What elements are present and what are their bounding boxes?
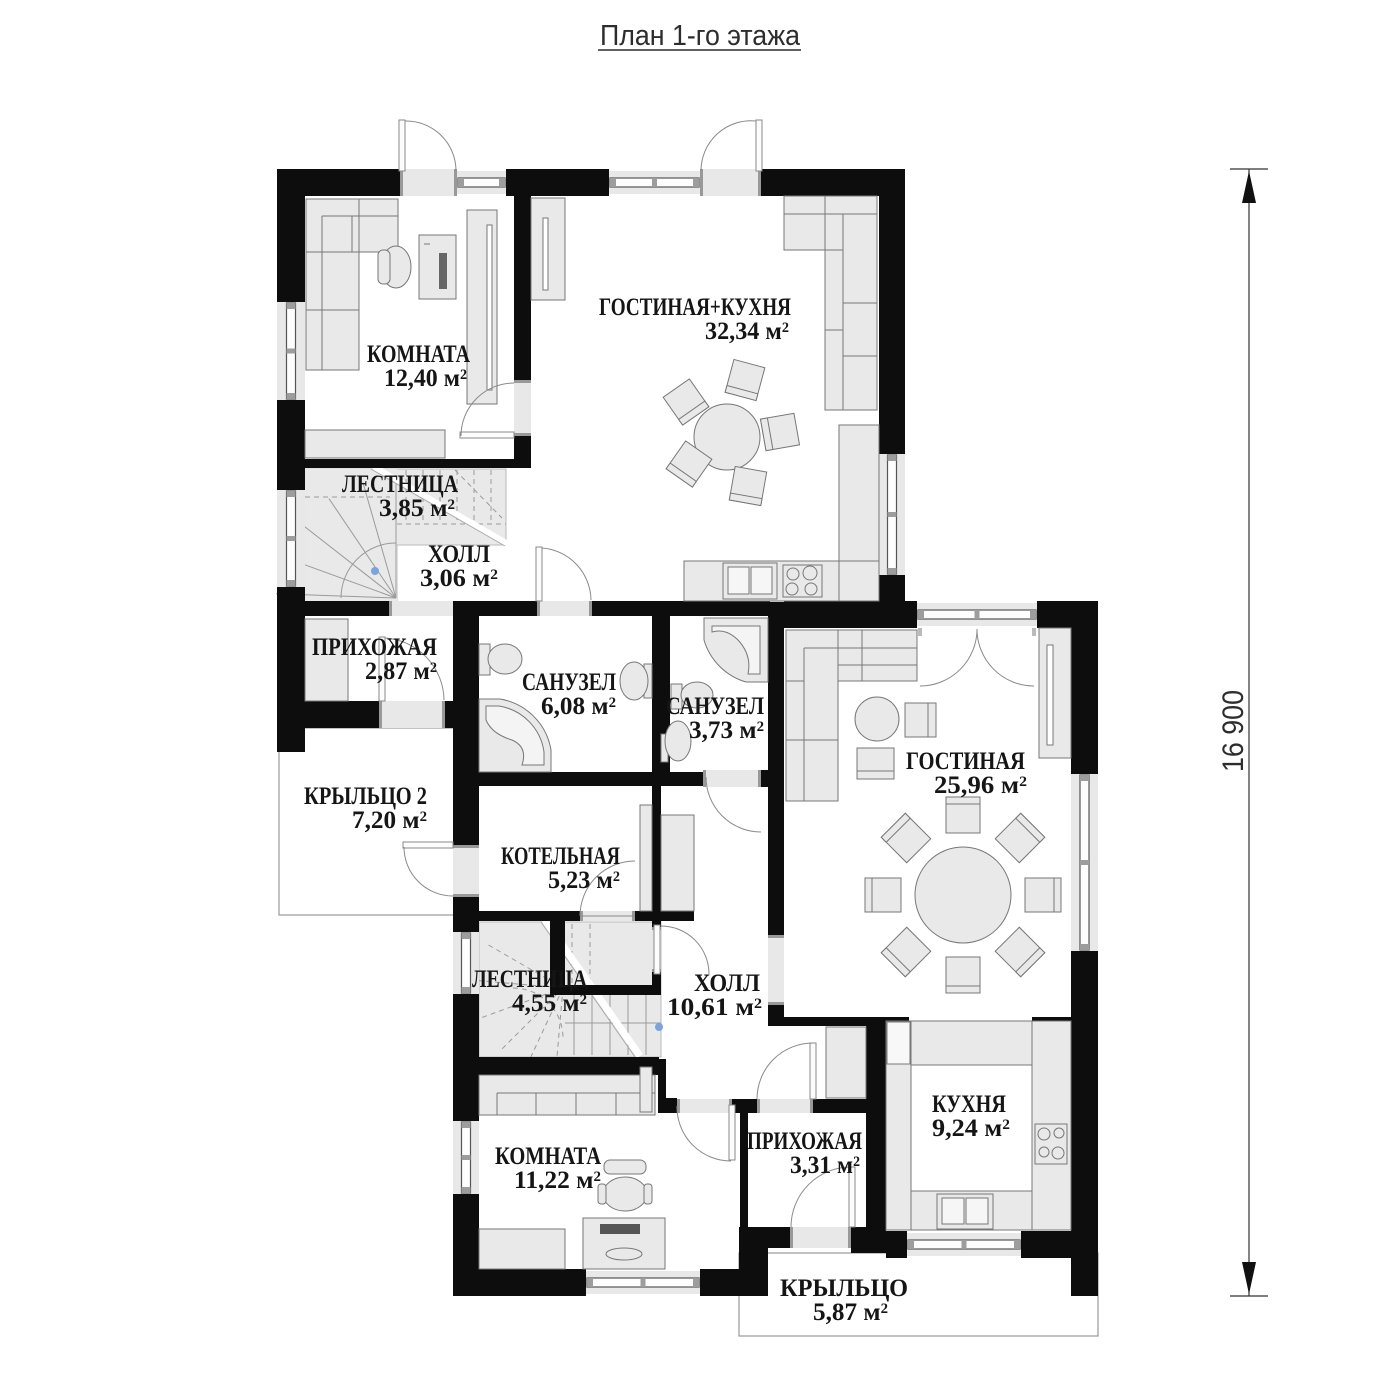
svg-text:25,96 м2: 25,96 м2: [934, 770, 1027, 799]
svg-text:7,20 м2: 7,20 м2: [352, 805, 427, 834]
svg-text:5,87 м2: 5,87 м2: [813, 1297, 888, 1326]
svg-text:4,55 м2: 4,55 м2: [512, 988, 587, 1017]
svg-text:12,40 м2: 12,40 м2: [384, 363, 467, 392]
svg-text:3,06 м2: 3,06 м2: [420, 563, 498, 592]
svg-text:16 900: 16 900: [1217, 690, 1250, 772]
svg-text:План 1-го этажа: План 1-го этажа: [600, 20, 801, 52]
svg-text:3,85 м2: 3,85 м2: [379, 493, 455, 522]
svg-text:32,34 м2: 32,34 м2: [705, 316, 789, 345]
svg-text:3,31 м2: 3,31 м2: [790, 1150, 860, 1179]
svg-text:10,61 м2: 10,61 м2: [667, 992, 762, 1021]
svg-text:2,87 м2: 2,87 м2: [365, 656, 437, 685]
svg-text:3,73 м2: 3,73 м2: [689, 715, 764, 744]
svg-text:9,24 м2: 9,24 м2: [932, 1113, 1010, 1142]
svg-text:11,22 м2: 11,22 м2: [514, 1165, 601, 1194]
svg-text:6,08 м2: 6,08 м2: [541, 691, 616, 720]
svg-text:5,23 м2: 5,23 м2: [548, 865, 620, 894]
